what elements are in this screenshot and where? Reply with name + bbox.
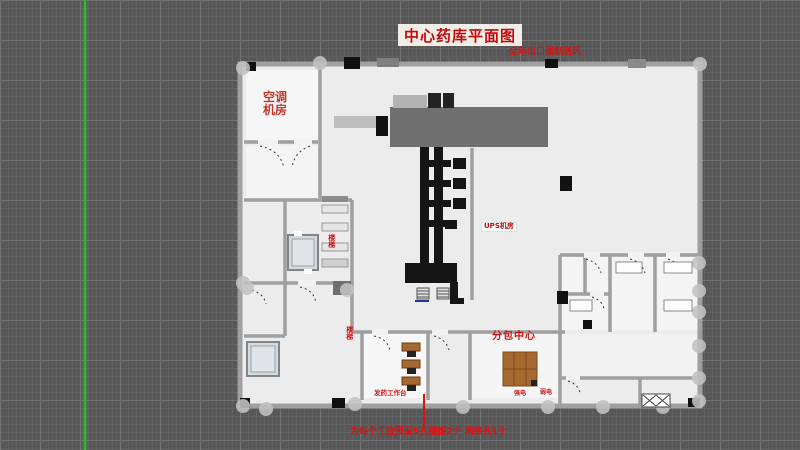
packing-center-label: 分包中心 — [492, 331, 536, 342]
small-room-label-2: 弱电 — [540, 390, 552, 397]
bottom-note-label: 为每个工位预留5孔插座2个 网络孔1个 — [350, 428, 507, 438]
office-desks — [402, 343, 420, 391]
annotation-leader-line — [423, 394, 425, 428]
ups-room-label: UPS机房 — [481, 222, 517, 232]
plan-title-box: 中心药库平面图 — [398, 24, 522, 46]
stair-label-2: 楼梯 — [327, 234, 335, 248]
ac-room-label-line2: 机房 — [263, 104, 287, 117]
floor-plan-drawing — [0, 0, 800, 450]
plan-title: 中心药库平面图 — [404, 25, 516, 46]
cad-canvas[interactable]: 中心药库平面图 全年出口强制送风 空调 机房 UPS机房 分包中心 发药工作台 … — [0, 0, 800, 450]
elevator-shaft-1 — [288, 231, 318, 274]
small-room-label-1: 强电 — [514, 391, 526, 398]
x-door — [642, 394, 670, 407]
elevator-shaft-2 — [247, 342, 279, 376]
stair-label-1: 楼梯 — [345, 326, 353, 340]
ac-room-label: 空调 机房 — [263, 91, 287, 117]
top-note-label: 全年出口强制送风 — [509, 48, 581, 58]
packing-table — [503, 352, 537, 386]
desk-note-label: 发药工作台 — [374, 390, 407, 397]
